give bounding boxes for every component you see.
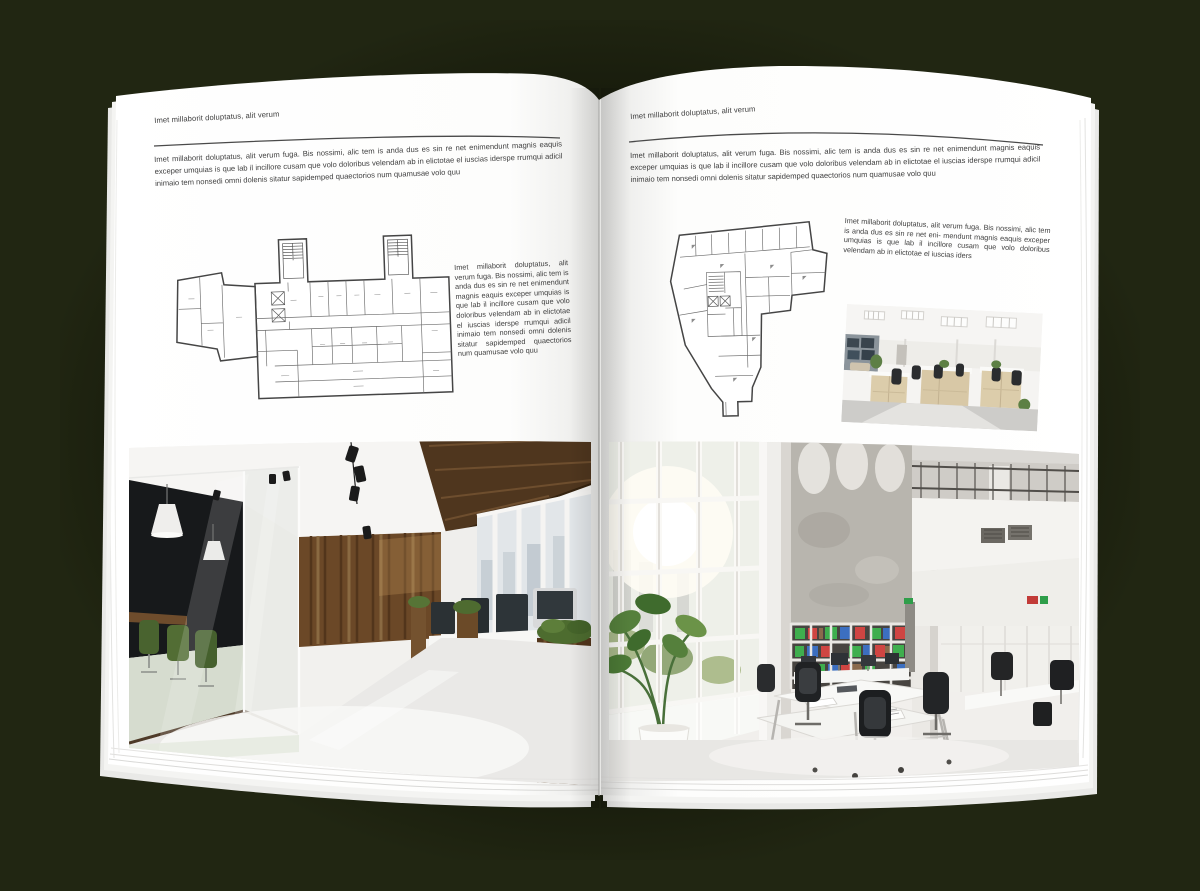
left-page-side-paragraph: Imet millaborit doluptatus, alit verum f… <box>454 258 572 359</box>
left-page: Imet millaborit doluptatus, alit verum I… <box>102 58 599 803</box>
office-photo-right <box>609 440 1079 782</box>
floor-plan-right <box>649 215 846 422</box>
left-page-header: Imet millaborit doluptatus, alit verum <box>154 109 280 125</box>
open-brochure-spread: Imet millaborit doluptatus, alit verum I… <box>102 58 1098 818</box>
floor-plan-left <box>158 220 457 422</box>
floor-plan-left-outline <box>173 234 452 401</box>
right-page-side-paragraph: Imet millaborit doluptatus, alit verum f… <box>843 216 1051 264</box>
mezzanine-balcony <box>912 440 1079 626</box>
screenshot-canvas: { "canvas": { "background_color": "#2126… <box>0 0 1200 891</box>
small-office-photo <box>841 304 1043 431</box>
fire-sign <box>1027 596 1038 604</box>
right-page-header: Imet millaborit doluptatus, alit verum <box>630 104 756 121</box>
atrium-window-wall <box>609 440 759 770</box>
exit-sign <box>1040 596 1048 604</box>
book-spine <box>598 100 600 796</box>
atrium-floor <box>609 736 1079 782</box>
concrete-feature-wall <box>791 440 912 624</box>
office-photo-left <box>129 440 591 788</box>
right-page: Imet millaborit doluptatus, alit verum I… <box>599 58 1096 803</box>
right-page-intro-paragraph: Imet millaborit doluptatus, alit verum f… <box>630 141 1041 185</box>
